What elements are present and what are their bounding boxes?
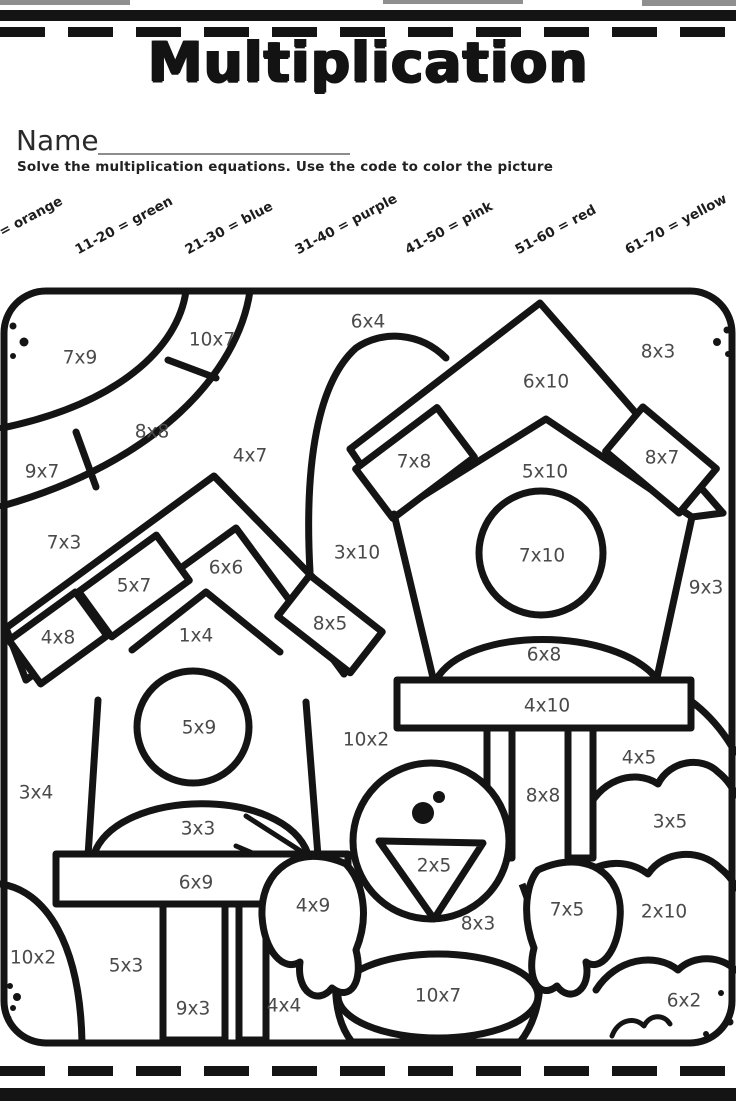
bottom-dashed-rule: [0, 1066, 736, 1076]
equation-label: 5x7: [117, 576, 152, 597]
right-house-wall: [656, 517, 692, 682]
equation-label: 6x2: [667, 991, 702, 1012]
equation-label: 8x8: [135, 422, 170, 443]
equation-label: 7x3: [47, 533, 82, 554]
worksheet-page: { "page": { "title": "Multiplication", "…: [0, 0, 736, 1104]
equation-label: 8x7: [645, 448, 680, 469]
equation-label: 9x7: [25, 462, 60, 483]
equation-label: 3x5: [653, 812, 688, 833]
equation-label: 4x9: [296, 896, 331, 917]
equation-label: 3x3: [181, 819, 216, 840]
equation-label: 4x8: [41, 628, 76, 649]
left-house-wall: [306, 702, 318, 856]
equation-label: 6x10: [523, 372, 569, 393]
equation-label: 10x2: [10, 948, 56, 969]
equation-label: 7x9: [63, 348, 98, 369]
equation-label: 8x3: [461, 914, 496, 935]
equation-label: 5x9: [182, 718, 217, 739]
equation-label: 5x3: [109, 956, 144, 977]
equation-label: 8x3: [641, 342, 676, 363]
bird-left-wing: [262, 856, 364, 996]
equation-label: 7x10: [519, 546, 565, 567]
equation-label: 10x2: [343, 730, 389, 751]
equation-label: 7x5: [550, 900, 585, 921]
bird-eye: [412, 802, 434, 824]
left-house-wall: [88, 700, 98, 856]
equation-label: 10x7: [415, 986, 461, 1007]
bird-eye: [433, 791, 445, 803]
equation-label: 4x4: [267, 996, 302, 1017]
equation-label: 4x5: [622, 748, 657, 769]
right-house-wall: [394, 514, 434, 682]
equation-label: 1x4: [179, 626, 214, 647]
right-post: [568, 728, 593, 858]
equation-label: 10x7: [189, 330, 235, 351]
equation-label: 4x10: [524, 696, 570, 717]
equation-label: 3x4: [19, 783, 54, 804]
equation-label: 6x8: [527, 645, 562, 666]
coloring-picture: 7x910x76x48x36x108x84x77x88x79x75x107x33…: [0, 0, 736, 1104]
equation-label: 7x8: [397, 452, 432, 473]
bottom-solid-rule: [0, 1088, 736, 1101]
equation-label: 9x3: [689, 578, 724, 599]
equation-label: 2x5: [417, 856, 452, 877]
equation-label: 8x8: [526, 786, 561, 807]
equation-label: 4x7: [233, 446, 268, 467]
equation-label: 9x3: [176, 999, 211, 1020]
equation-label: 8x5: [313, 614, 348, 635]
equation-label: 5x10: [522, 462, 568, 483]
equation-label: 2x10: [641, 902, 687, 923]
equation-label: 3x10: [334, 543, 380, 564]
left-post: [163, 904, 225, 1040]
equation-label: 6x9: [179, 873, 214, 894]
equation-label: 6x4: [351, 312, 386, 333]
equation-label: 6x6: [209, 558, 244, 579]
